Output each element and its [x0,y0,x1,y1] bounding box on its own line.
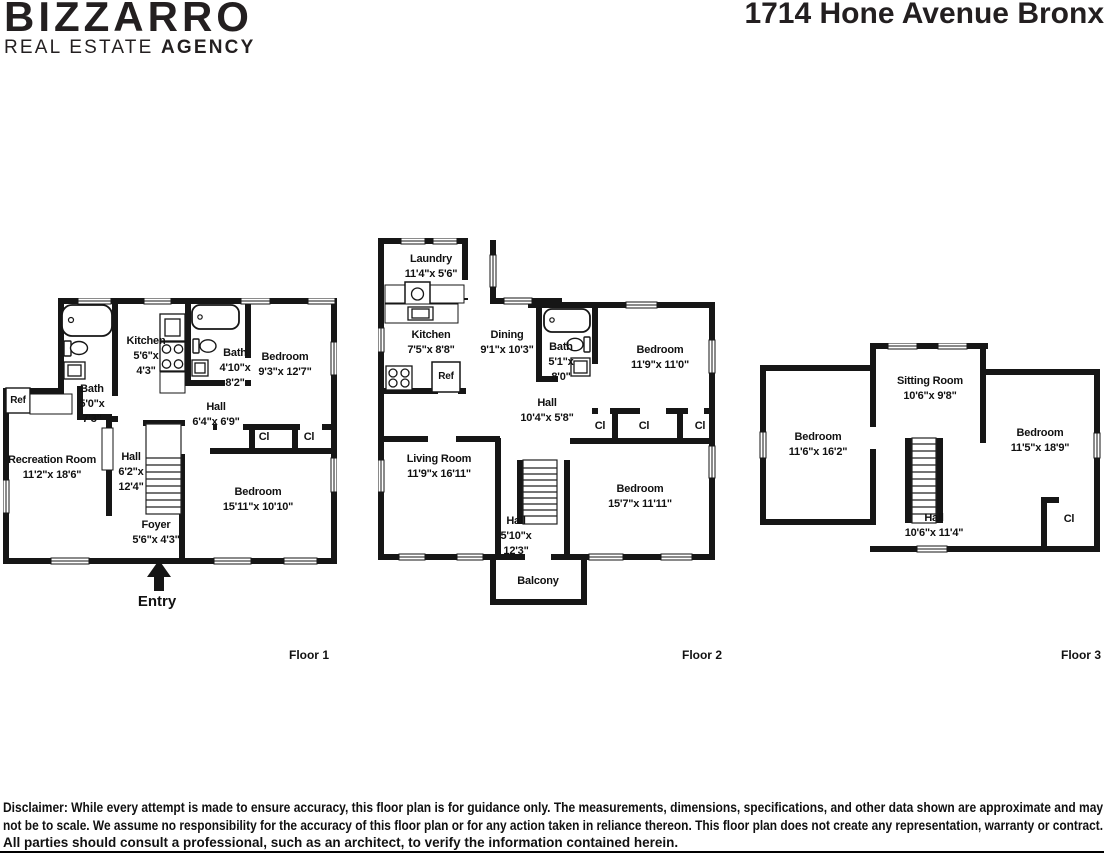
floor-1-plan: Kitchen5'6"x4'3" Bath4'10"x8'2" Bedroom9… [3,298,337,618]
floor-2-caption: Floor 2 [672,648,732,662]
room-label-dining: Dining9'1"x 10'3" [474,328,540,358]
room-label-living-room: Living Room11'9"x 16'11" [396,452,482,482]
page-title: 1714 Hone Avenue Bronx [744,0,1104,30]
room-label-laundry: Laundry11'4"x 5'6" [392,252,470,282]
disclaimer-line-2: not be to scale. We assume no responsibi… [3,817,973,835]
room-label-recreation-room: Recreation Room11'2"x 18'6" [3,453,101,483]
room-label-hall: Hall10'6"x 11'4" [899,511,969,541]
room-label-kitchen: Kitchen5'6"x4'3" [115,334,177,379]
washer-icon [385,282,464,306]
room-label-bedroom-lower: Bedroom15'7"x 11'11" [594,482,686,512]
entry-arrow-icon [147,560,171,591]
room-label-bedroom-west: Bedroom11'6"x 16'2" [770,430,866,460]
room-label-foyer: Foyer5'6"x 4'3" [118,518,194,548]
disclaimer: Disclaimer: While every attempt is made … [3,799,1103,852]
room-label-hall-center: Hall6'4"x 6'9" [183,400,249,430]
room-label-hall-upper: Hall10'4"x 5'8" [514,396,580,426]
logo-subtitle-regular: REAL ESTATE [4,37,161,58]
room-label-ref: Ref [432,362,460,392]
room-label-hall-west: Hall6'2"x12'4" [108,450,154,495]
room-label-hall-lower: Hall5'10"x12'3" [496,514,536,559]
agency-logo: BIZZARRO REAL ESTATE AGENCY [4,0,255,58]
logo-wordmark: BIZZARRO [4,0,255,34]
room-label-bath: Bath5'1"x8'0" [543,340,579,385]
floor-3-plan: Bedroom11'6"x 16'2" Sitting Room10'6"x 9… [758,343,1102,559]
room-label-closet-3: Cl [685,419,715,434]
room-label-kitchen: Kitchen7'5"x 8'8" [395,328,467,358]
disclaimer-line-1: Disclaimer: While every attempt is made … [3,799,983,817]
room-label-bedroom-upper: Bedroom9'3"x 12'7" [237,350,333,380]
floor-3-caption: Floor 3 [1051,648,1104,662]
room-label-sitting-room: Sitting Room10'6"x 9'8" [888,374,972,404]
room-label-balcony: Balcony [506,574,570,589]
entry-label: Entry [126,593,188,610]
room-label-bath-lower: Bath5'0"x7'3" [67,382,117,427]
logo-subtitle: REAL ESTATE AGENCY [4,38,255,58]
room-label-closet-left: Cl [249,430,279,445]
room-label-closet-right: Cl [294,430,324,445]
logo-subtitle-bold: AGENCY [161,37,256,58]
room-label-closet: Cl [1054,512,1084,527]
bathtub-icon [544,309,590,332]
floor-1-caption: Floor 1 [279,648,339,662]
bathtub-icon [62,305,239,336]
room-label-bedroom-upper: Bedroom11'9"x 11'0" [614,343,706,373]
floor-plan-page: BIZZARRO REAL ESTATE AGENCY 1714 Hone Av… [0,0,1104,853]
room-label-ref: Ref [6,388,30,413]
disclaimer-line-3: All parties should consult a professiona… [3,834,1103,852]
floor-2-plan: Laundry11'4"x 5'6" Kitchen7'5"x 8'8" Ref… [378,238,718,610]
room-label-closet-1: Cl [585,419,615,434]
room-label-bedroom-east: Bedroom11'5"x 18'9" [992,426,1088,456]
room-label-bedroom-lower: Bedroom15'11"x 10'10" [208,485,308,515]
stove-icon [386,366,412,390]
room-label-closet-2: Cl [629,419,659,434]
